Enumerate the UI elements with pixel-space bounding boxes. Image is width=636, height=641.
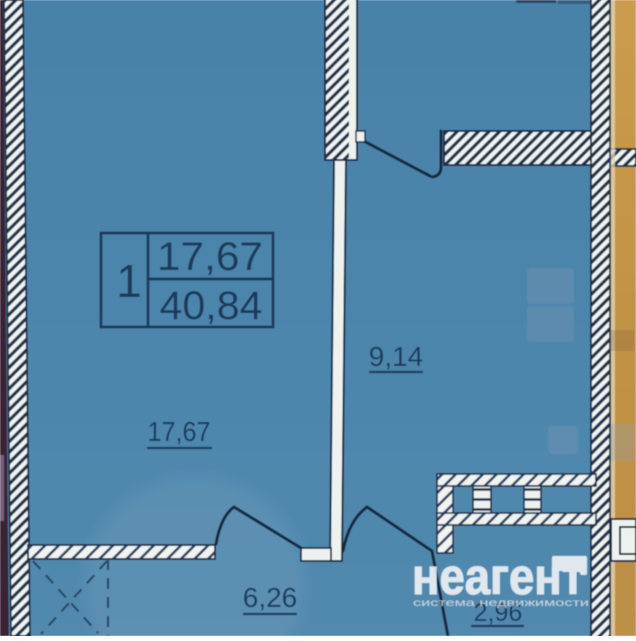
svg-text:1: 1 [116, 255, 142, 307]
svg-text:система недвижимости: система недвижимости [413, 598, 589, 609]
svg-text:17,67: 17,67 [148, 416, 211, 447]
svg-text:9,14: 9,14 [369, 341, 424, 372]
svg-text:6,26: 6,26 [243, 582, 298, 613]
svg-text:17,67: 17,67 [157, 235, 263, 279]
svg-text:40,84: 40,84 [160, 284, 263, 328]
